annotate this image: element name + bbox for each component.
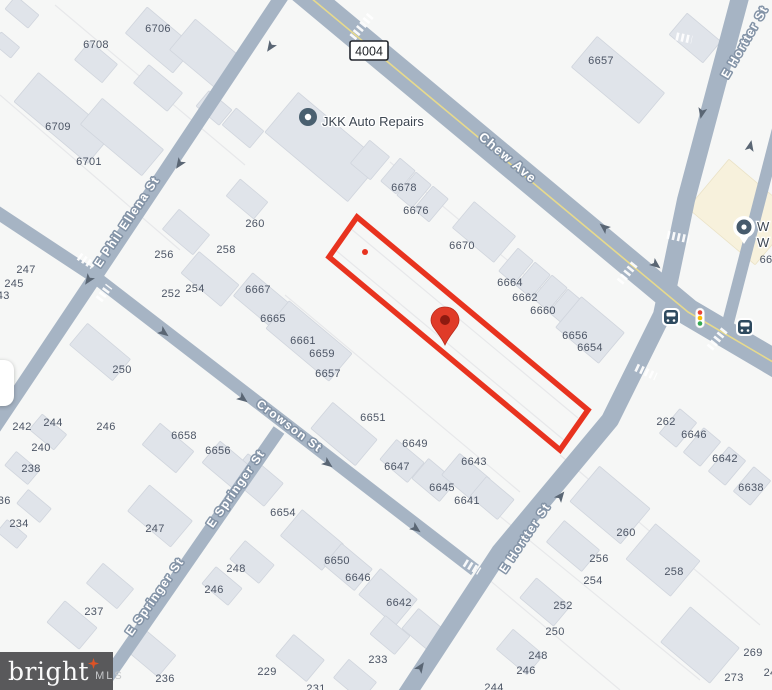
house-number: 6657 — [315, 368, 341, 380]
house-number: 244 — [43, 417, 62, 429]
house-number: 6654 — [577, 342, 603, 354]
bus-window — [741, 323, 750, 327]
house-number: 6706 — [145, 23, 171, 35]
brightmls-watermark: bright MLS — [0, 652, 113, 690]
traffic-light-lamp — [698, 310, 703, 315]
house-number: 256 — [154, 249, 173, 261]
house-number: 6654 — [270, 507, 296, 519]
house-number: 248 — [226, 563, 245, 575]
house-number: 237 — [84, 606, 103, 618]
bus-stop-icon-bg — [664, 310, 678, 324]
house-number: 229 — [257, 666, 276, 678]
map-side-control[interactable] — [0, 360, 14, 406]
house-number: 246 — [96, 421, 115, 433]
house-number: 246 — [204, 584, 223, 596]
bus-window — [667, 313, 676, 317]
house-number: 273 — [724, 672, 743, 684]
house-number: 6660 — [530, 305, 556, 317]
house-number: 246 — [516, 665, 535, 677]
house-number: 256 — [589, 553, 608, 565]
poi-dot-icon-center — [305, 114, 311, 120]
house-number: 231 — [306, 683, 325, 690]
traffic-light-lamp — [698, 316, 703, 321]
house-number: 6661 — [290, 335, 316, 347]
partial-poi-label-line2: W — [757, 235, 770, 250]
house-number: 6646 — [345, 572, 371, 584]
house-number: 244 — [484, 682, 503, 690]
partial-poi-pin-dot — [741, 224, 746, 229]
bus-wheel — [673, 319, 676, 322]
map-canvas[interactable]: Chew AveE Phil Ellena StCrowson StE Spri… — [0, 0, 772, 690]
house-number: 254 — [583, 575, 602, 587]
house-number: 6641 — [454, 495, 480, 507]
house-number: 238 — [21, 463, 40, 475]
house-number: 6642 — [386, 597, 412, 609]
house-number: 6662 — [512, 292, 538, 304]
poi-label-jkk-auto-repairs[interactable]: JKK Auto Repairs — [322, 114, 424, 129]
house-number: 6664 — [497, 277, 523, 289]
bus-stop-icon-bg — [738, 320, 752, 334]
house-number: 6678 — [391, 182, 417, 194]
brightmls-spark-icon — [88, 658, 99, 669]
house-number: 6708 — [83, 39, 109, 51]
brightmls-suffix: MLS — [95, 670, 124, 682]
map-view[interactable]: Chew AveE Phil Ellena StCrowson StE Spri… — [0, 0, 772, 690]
house-number: 248 — [528, 650, 547, 662]
house-number: 269 — [743, 647, 762, 659]
traffic-light-lamp — [698, 321, 703, 326]
brightmls-brand: bright — [8, 659, 89, 684]
house-number: 6659 — [309, 348, 335, 360]
house-number: 258 — [216, 244, 235, 256]
house-number: 233 — [368, 654, 387, 666]
house-number: 245 — [4, 278, 23, 290]
house-number: 6638 — [738, 482, 764, 494]
house-number: 262 — [656, 416, 675, 428]
house-number: 6658 — [171, 430, 197, 442]
house-number: 6656 — [205, 445, 231, 457]
house-number: 6649 — [402, 438, 428, 450]
house-number: 234 — [9, 518, 28, 530]
house-number: 247 — [16, 264, 35, 276]
house-number: 6676 — [403, 205, 429, 217]
house-number: 6709 — [45, 121, 71, 133]
house-number: 66 — [760, 254, 772, 266]
house-number: 6651 — [360, 412, 386, 424]
house-number: 252 — [161, 288, 180, 300]
bus-wheel — [667, 319, 670, 322]
house-number: 6645 — [429, 482, 455, 494]
house-number: 6646 — [681, 429, 707, 441]
house-number: 250 — [112, 364, 131, 376]
house-number: 260 — [616, 527, 635, 539]
house-number: 242 — [12, 421, 31, 433]
house-number: 6665 — [260, 313, 286, 325]
house-number: 6667 — [245, 284, 271, 296]
house-number: 236 — [0, 495, 11, 507]
house-number: 252 — [553, 600, 572, 612]
location-pin-core — [440, 315, 450, 325]
house-number: 6642 — [712, 453, 738, 465]
route-shield-label: 4004 — [355, 45, 383, 59]
house-number: 260 — [245, 218, 264, 230]
house-number: 6643 — [461, 456, 487, 468]
house-number: 240 — [31, 442, 50, 454]
house-number: 243 — [0, 290, 10, 302]
house-number: 6647 — [384, 461, 410, 473]
house-number: 6656 — [562, 330, 588, 342]
house-number: 258 — [664, 566, 683, 578]
house-number: 236 — [155, 673, 174, 685]
bus-wheel — [741, 329, 744, 332]
house-number: 24 — [764, 667, 772, 679]
house-number: 6657 — [588, 55, 614, 67]
partial-poi-label-line1: W — [757, 219, 770, 234]
bus-wheel — [747, 329, 750, 332]
house-number: 6670 — [449, 240, 475, 252]
house-number: 6650 — [324, 555, 350, 567]
house-number: 247 — [145, 523, 164, 535]
house-number: 254 — [185, 283, 204, 295]
house-number: 250 — [545, 626, 564, 638]
house-number: 6701 — [76, 156, 102, 168]
parcel-dot — [362, 249, 368, 255]
